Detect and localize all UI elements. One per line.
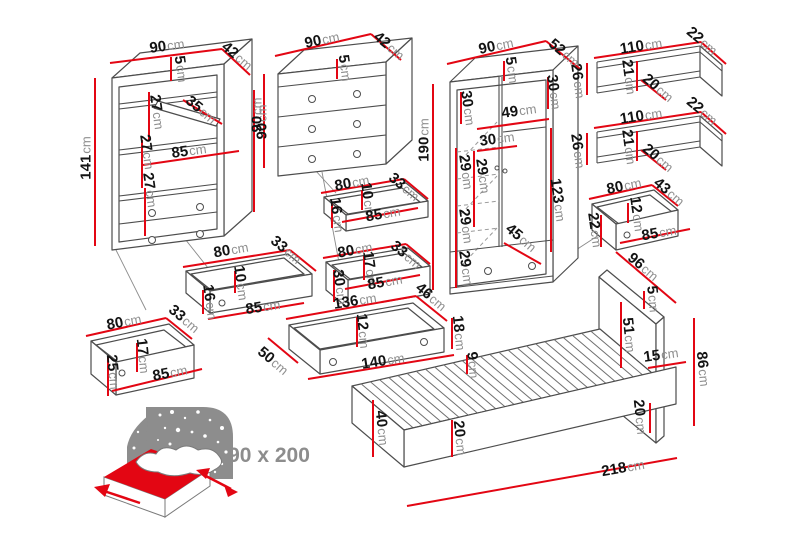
dim-bed-headboard-top: 5cm bbox=[644, 285, 662, 313]
dim-dresser-top: 5cm bbox=[336, 54, 355, 83]
dim-bed-headboard-upper: 51cm bbox=[620, 317, 639, 353]
dim-bed-drawer-inner-height: 12cm bbox=[354, 313, 373, 349]
dim-dresser-height: 90cm bbox=[250, 97, 265, 132]
dim-bookcase-top: 5cm bbox=[172, 55, 191, 84]
dim-bed-base-height: 20cm bbox=[631, 399, 650, 435]
dim-bed-headboard-height: 86cm bbox=[694, 351, 713, 387]
mattress-size-label: 90 x 200 bbox=[228, 444, 310, 468]
dim-bookcase-drawer-deep-front-height: 25cm bbox=[104, 354, 123, 390]
mattress-size-icon bbox=[94, 407, 238, 517]
diagram-line-art bbox=[0, 0, 800, 533]
dim-bed-foot-height: 40cm bbox=[373, 410, 392, 446]
dim-bookcase-drawer-deep-inner-height: 17cm bbox=[134, 338, 153, 374]
furniture-dimension-diagram: 90cm 42cm 141cm 5cm 27cm 35cm 27cm 85cm … bbox=[0, 0, 800, 533]
dim-bed-drawer-front-height: 18cm bbox=[450, 315, 469, 351]
dim-wardrobe-height: 190cm bbox=[417, 118, 432, 161]
dim-bed-frame-height: 20cm bbox=[451, 420, 470, 456]
dim-wardrobe-top: 5cm bbox=[503, 56, 522, 85]
dim-bed-rail: 9cm bbox=[464, 351, 482, 379]
dim-bookcase-height: 141cm bbox=[79, 136, 94, 179]
